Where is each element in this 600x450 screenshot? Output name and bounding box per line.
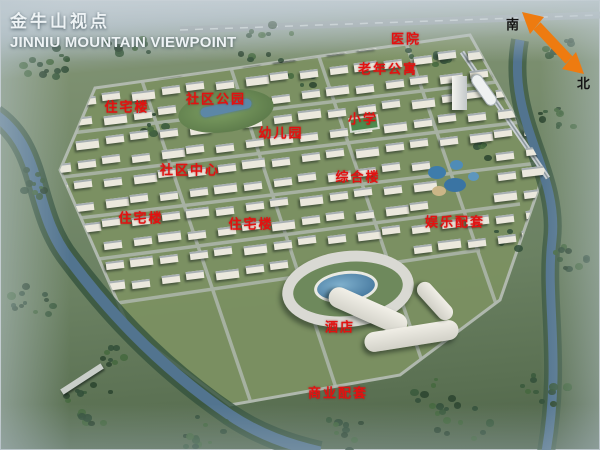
map-label-5: 幼儿园: [258, 123, 303, 142]
page-title-zh: 金牛山视点: [10, 7, 236, 32]
map-label-12: 商业配套: [308, 383, 368, 402]
map-label-1: 老年公寓: [358, 59, 418, 78]
map-label-7: 综合楼: [335, 167, 380, 186]
page-title-en: JINNIU MOUNTAIN VIEWPOINT: [10, 34, 236, 51]
map-label-4: 小学: [348, 109, 378, 128]
map-label-6: 社区中心: [160, 160, 220, 179]
compass-south-label: 南: [506, 14, 519, 33]
map-label-9: 住宅楼: [228, 214, 273, 233]
viewpoint-rendering: 医院老年公寓社区公园住宅楼小学幼儿园社区中心综合楼住宅楼住宅楼娱乐配套酒店商业配…: [0, 0, 600, 450]
compass: 南 北: [504, 4, 594, 96]
map-label-11: 酒店: [325, 317, 355, 336]
compass-north-label: 北: [577, 73, 590, 92]
map-label-3: 住宅楼: [104, 97, 149, 116]
map-label-10: 娱乐配套: [425, 212, 485, 231]
map-label-2: 社区公园: [186, 89, 246, 108]
title-block: 金牛山视点 JINNIU MOUNTAIN VIEWPOINT: [10, 7, 236, 51]
map-label-8: 住宅楼: [118, 208, 163, 227]
map-label-0: 医院: [391, 29, 421, 48]
